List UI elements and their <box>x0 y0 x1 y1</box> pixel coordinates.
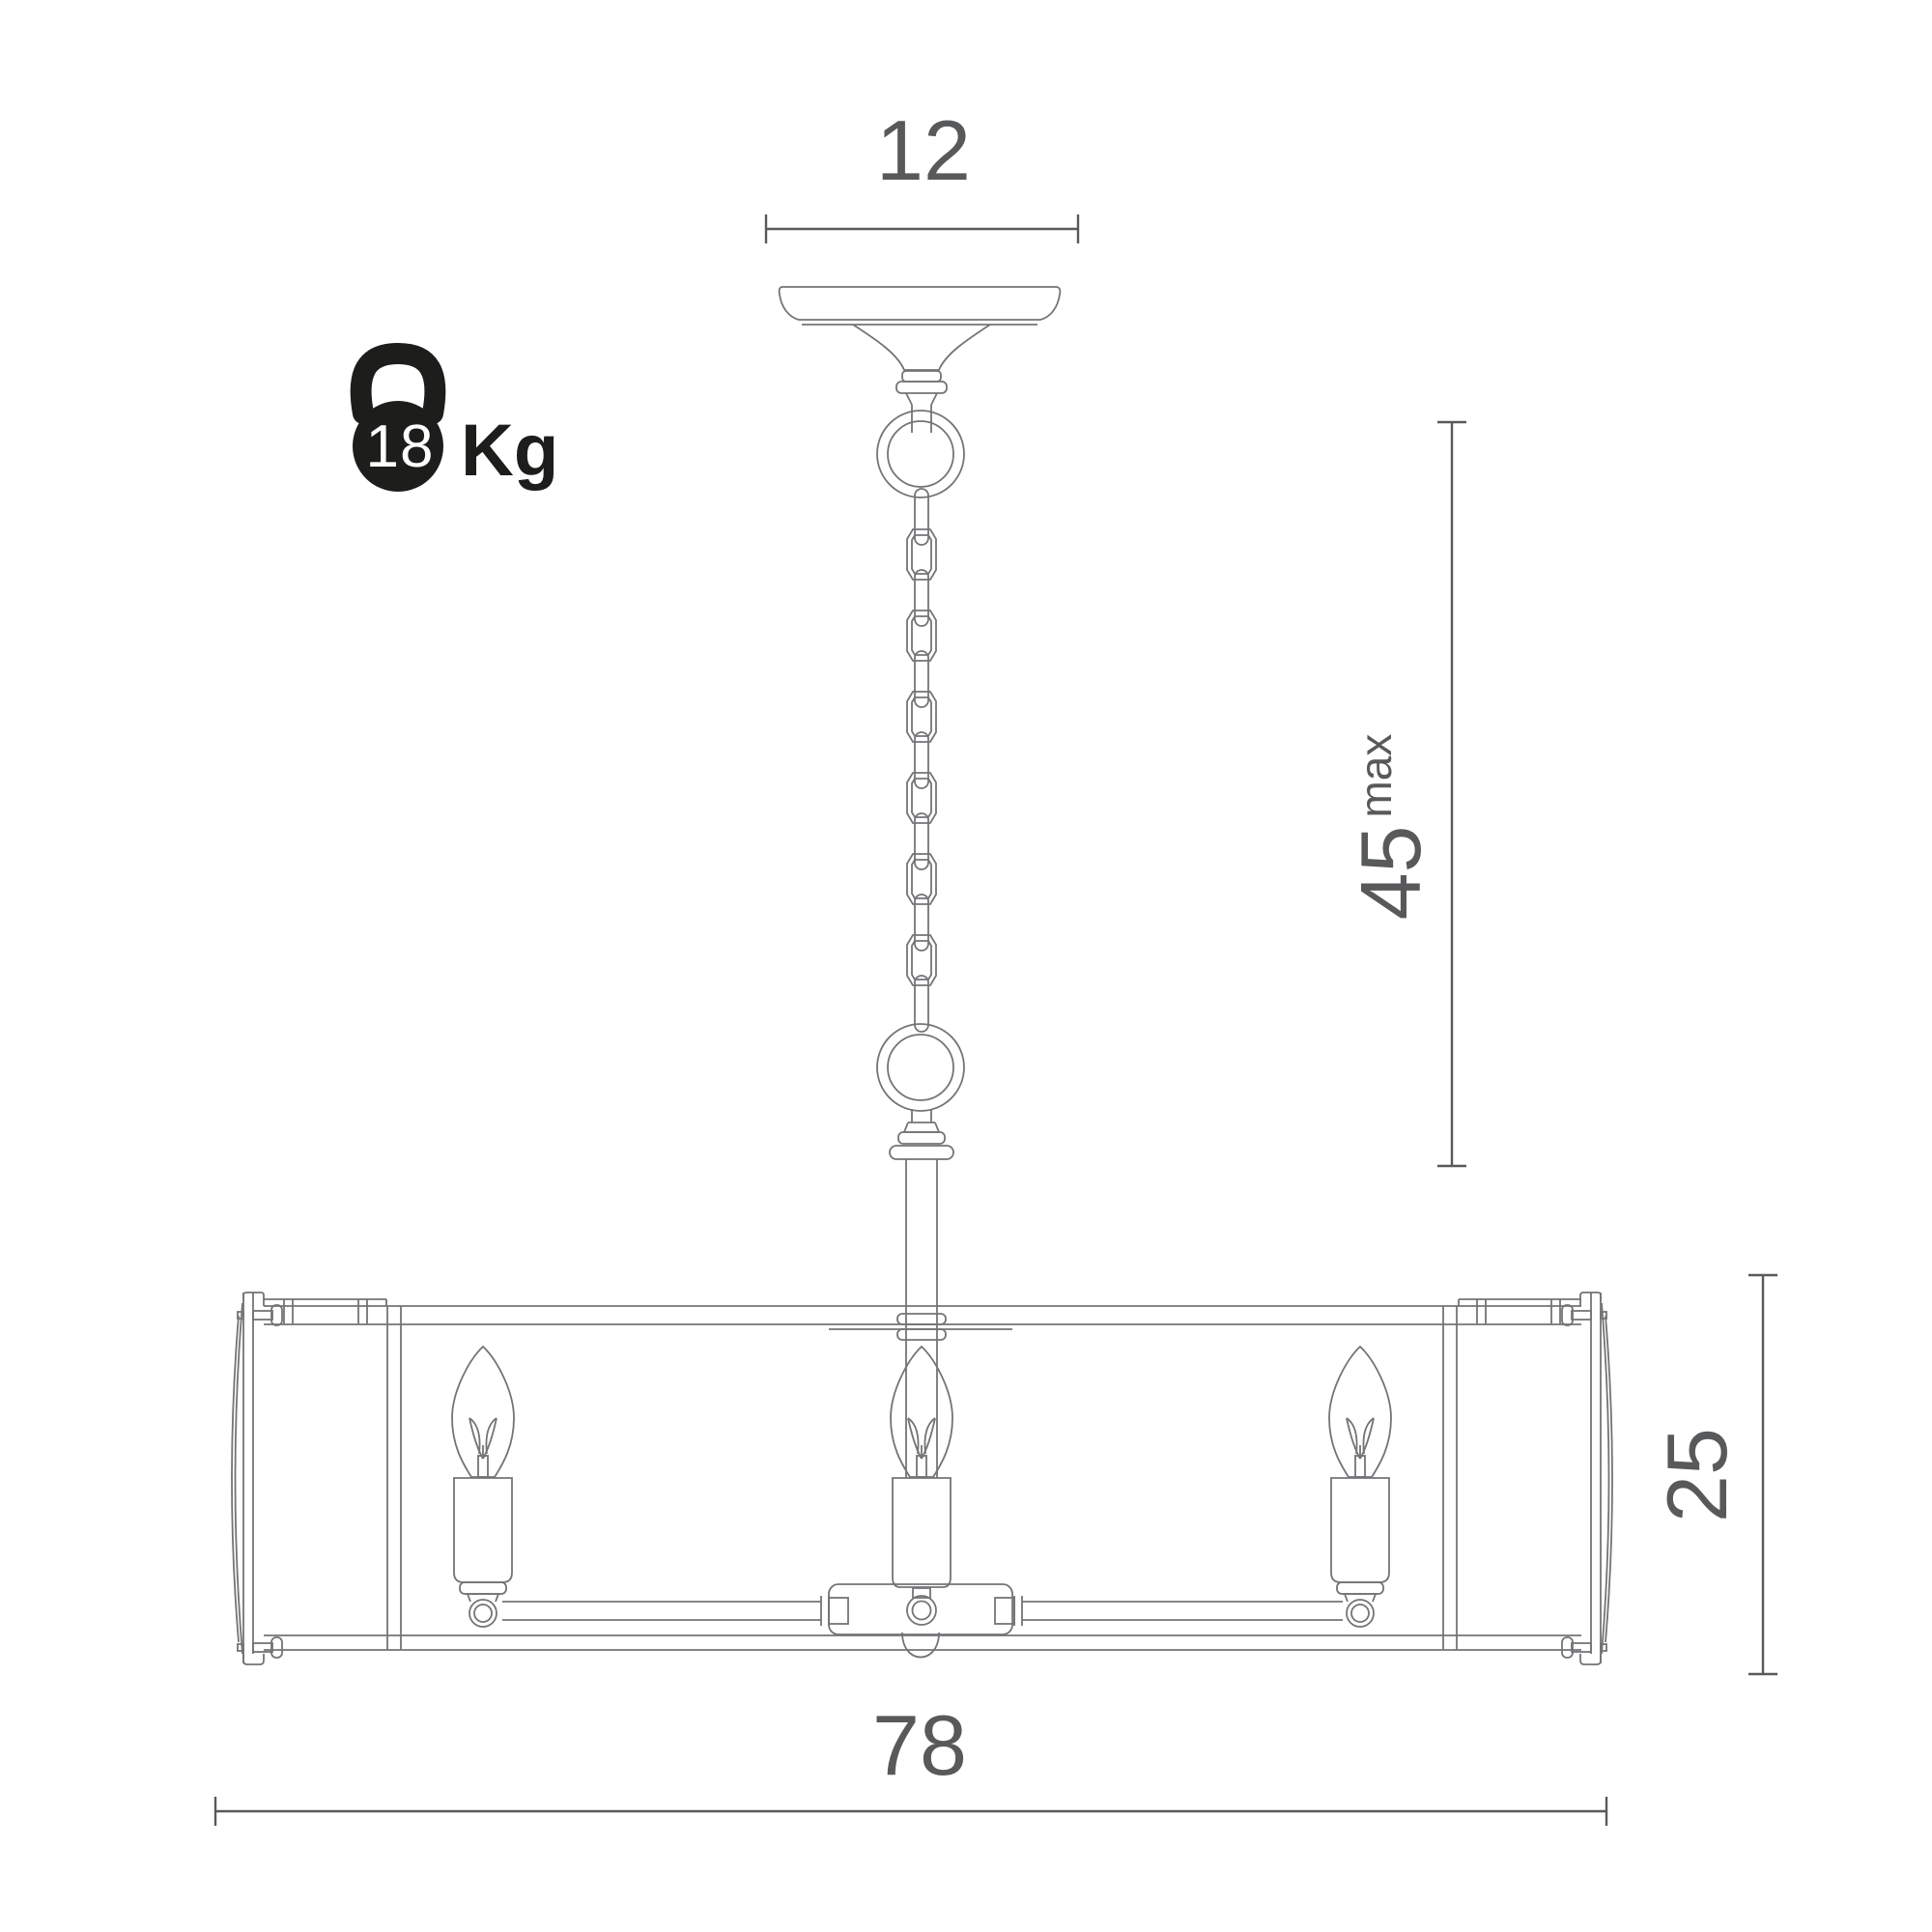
candle-right <box>1329 1347 1391 1627</box>
chandelier-line-drawing <box>0 0 1932 1932</box>
body-width-value: 78 <box>872 1703 967 1788</box>
weight-unit: Kg <box>461 414 558 488</box>
dim-line-hanging-height <box>1437 422 1466 1166</box>
canopy-width-value: 12 <box>876 108 971 193</box>
center-junction-box <box>829 1584 1012 1658</box>
weight-value: 18 <box>366 417 435 477</box>
left-end-panel <box>232 1293 264 1664</box>
body-height-value: 25 <box>1655 1428 1740 1522</box>
top-ring <box>877 411 964 497</box>
dimension-drawing-canvas: 12 45max 25 78 18 Kg <box>0 0 1932 1932</box>
dim-line-canopy-width <box>766 214 1078 243</box>
dim-line-body-width <box>215 1797 1606 1826</box>
dim-line-body-height <box>1748 1275 1777 1674</box>
candle-left <box>452 1347 514 1627</box>
hanging-height-value: 45 <box>1343 826 1438 921</box>
stem-finial <box>890 1109 953 1478</box>
bottom-ring <box>877 1024 964 1111</box>
hanging-height-suffix: max <box>1350 734 1401 818</box>
candle-center <box>891 1347 952 1587</box>
panel-screws <box>238 1305 1606 1658</box>
right-end-panel <box>1580 1293 1612 1664</box>
suspension-chain <box>907 489 936 1032</box>
hanging-height-label: 45max <box>1349 734 1434 921</box>
